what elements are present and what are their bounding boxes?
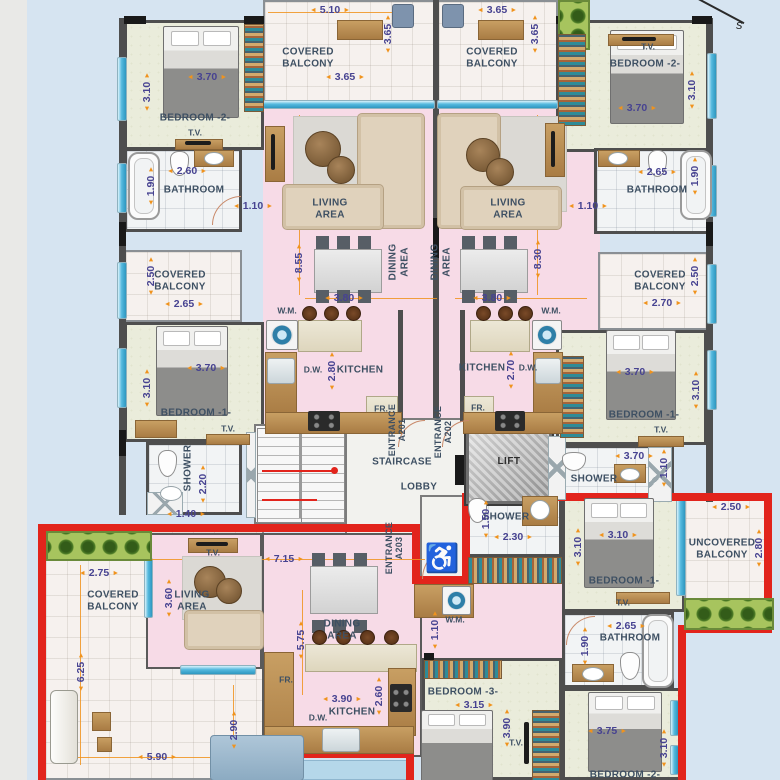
dim-bedroom2-w-a201: 3.70 [187,71,227,83]
dim-living-h-a201: 8.55 [293,243,305,283]
label-dining-a203: DINING AREA [317,619,367,642]
dim-bedroom2-h-a201: 3.10 [141,72,153,112]
window-balcony-a202 [707,264,717,324]
dim-shower-w-a201: 1.40 [166,508,206,520]
label-bathroom-a202: BATHROOM [627,184,688,196]
dim-wm-a203: 1.10 [429,610,441,650]
staircase-handrail-dot [331,467,338,474]
dim-bedroom1-h-a201: 3.10 [141,368,153,408]
dim-bedroom1-w-a201: 3.70 [186,362,226,374]
stove-a201 [308,411,340,431]
staircase-rail [299,430,302,518]
dim-balcony-mid-w-a201: 2.65 [164,298,204,310]
dim-365-side-a201: 3.65 [382,14,394,54]
stool-a202-1 [476,306,491,321]
tv-unit-bedroom1-a202 [638,436,684,447]
label-tv-bedroom1-a202: T.V. [654,426,668,435]
dim-bedroom2-h-a203: 3.10 [658,728,670,768]
label-tv-living-a203: T.V. [206,549,220,558]
side-table2-a203 [97,737,112,752]
tv-bedroom3-a203 [524,722,529,764]
label-dining-a202: DINING AREA [430,237,453,287]
dim-shower-h-a202: 1.10 [658,448,670,488]
compass-label: s [736,17,743,32]
dim-bedroom2-w-a203: 3.75 [587,725,627,737]
basin-shower-a202 [620,468,640,481]
dim-shower-h-a203: 1.50 [480,499,492,539]
dim-365-top-a202: 3.65 [477,4,517,16]
tv-bedroom2-a201 [185,141,211,145]
balcony-table-a202 [478,20,524,40]
dim-uncovered-w: 2.50 [711,501,751,513]
dishwasher-a202 [535,358,561,384]
label-bedroom3-a203: BEDROOM -3- [428,686,499,698]
basin-a202 [608,152,628,165]
rail-balcony-a202 [437,100,558,109]
window-bedroom2-a202 [707,53,717,119]
dining-chairs-a203-top [312,553,374,566]
tv-bedroom2-a202 [622,37,656,41]
dim-uncovered-h: 2.80 [753,528,765,568]
balcony-chair-a202 [442,4,464,28]
dim-bedroom3-w-a203: 3.15 [454,699,494,711]
dim-bedroom3-h-a203: 3.90 [501,708,513,748]
stool-a202-3 [518,306,533,321]
entrance-a202-unit: A202 [443,406,453,458]
stove-a203 [390,684,412,712]
dim-bathroom-h-a202: 1.90 [689,156,701,196]
dresser-bedroom1-a201 [135,420,177,438]
dim-shower-w-a203: 2.30 [493,531,533,543]
dining-table-a201 [314,249,382,293]
dim-bedroom1-h-a202: 3.10 [690,370,702,410]
stool-a203-4 [384,630,399,645]
wall-accent-2 [244,16,264,24]
wall-accent-1 [124,16,146,24]
dim-bathroom-w-a203: 2.65 [606,620,646,632]
dim-hall-a201: 1.10 [233,200,273,212]
entrance-a203-unit: A203 [394,522,404,574]
red-outline-vestibule-left [412,524,420,584]
lift-label: LIFT [497,456,520,467]
staircase-flight-right [301,428,345,523]
bed-bedroom3-a203 [421,710,493,780]
planter-uncovered-balcony [684,598,774,630]
label-balcony-mid-a202: COVERED BALCONY [620,270,700,293]
dim-bathroom-h-a203: 1.90 [579,626,591,666]
tv-living-a203 [196,542,228,546]
bar-counter-a201 [298,320,362,352]
dim-bedroom1-w-a202: 3.70 [615,366,655,378]
label-tv-bedroom1-a203: T.V. [616,599,630,608]
dim-365-w-a201: 3.65 [325,71,365,83]
staircase-arrow-line [262,499,317,501]
label-entrance-a203: ENTRANCE A203 [384,522,404,574]
label-tv-bedroom1-a201: T.V. [221,425,235,434]
window-bedroom2-a201 [117,57,127,121]
stool-a201-3 [346,306,361,321]
dim-living-h-a202: 8.30 [532,239,544,279]
dim-kitchen-w-a203: 3.90 [322,693,362,705]
label-bedroom2-a201: BEDROOM -2- [160,112,231,124]
bar-counter-a202 [470,320,530,352]
dining-table-a202 [460,249,528,293]
dim-shower-h-a201: 2.20 [197,464,209,504]
dim-balcony-mid-w-a202: 2.70 [642,297,682,309]
label-dw-a202: D.W. [519,364,537,373]
side-table-a203 [92,712,111,731]
label-staircase: STAIRCASE [372,456,432,468]
dishwasher-a201 [267,358,295,384]
rail-balcony-a201 [263,100,435,109]
label-entrance-a202: ENTRANCE A202 [433,406,453,458]
dim-kitchen-h-a201: 2.80 [326,351,338,391]
entrance-a201-unit: A201 [397,404,407,456]
wall-accent-4 [692,16,712,24]
dim-kitchen-h-a203: 2.60 [373,676,385,716]
dim-hall-a202: 1.10 [568,200,608,212]
label-wm-a202: W.M. [541,307,560,316]
balcony-table-a201 [337,20,383,40]
window-bedroom1-a202 [707,350,717,410]
dim-bedroom1-w-a203: 3.10 [598,529,638,541]
label-dining-a201: DINING AREA [388,237,411,287]
label-bathroom-a201: BATHROOM [164,184,225,196]
tv-living-a201 [271,134,275,170]
label-tv-bedroom2-a201: T.V. [188,129,202,138]
stool-a202-2 [498,306,513,321]
planter-a203-top [46,531,152,561]
coffee-table2-a203 [216,578,242,604]
label-kitchen-a203: KITCHEN [329,706,376,718]
entrance-a202-word: ENTRANCE [433,406,443,458]
dim-balcony-w2-a203: 5.90 [137,751,177,763]
daybed-a203 [210,735,304,780]
dim-living-h-a203: 3.60 [163,578,175,618]
wall-accent-6 [119,430,126,456]
dining-table-a203 [310,566,378,614]
window-bedroom1-a201 [117,348,127,408]
lift-shaft-hatch [548,436,566,500]
dim-balcony-mid-h-a202: 2.50 [689,256,701,296]
label-bedroom1-a202: BEDROOM -1- [609,409,680,421]
basin-a203 [582,667,604,681]
label-fr-a203: FR. [279,676,293,685]
stool-a201-2 [324,306,339,321]
label-kitchen-a202: KITCHEN [459,362,506,374]
dining-chairs-a202-top [462,236,524,249]
label-living-a202: LIVING AREA [483,198,533,221]
dim-bathroom-w-a201: 2.60 [167,165,207,177]
staircase-handrail-line [262,470,332,472]
label-bedroom1-a203: BEDROOM -1- [589,575,660,587]
label-fr-a202: FR. [471,404,485,413]
entrance-a201-word: ENTRANCE [387,404,397,456]
dim-balcony-mid-h-a201: 2.50 [145,256,157,296]
label-bedroom2-a202: BEDROOM -2- [610,58,681,70]
wall-accent-8 [706,222,713,246]
label-bathroom-a203: BATHROOM [600,632,661,644]
staircase-flight-left [257,428,302,523]
dim-shower-w-a202: 3.70 [614,450,654,462]
dim-bathroom-h-a201: 1.90 [145,166,157,206]
lounge-chair-a203 [50,690,78,764]
coffee-table2-a202 [486,158,514,186]
stool-a201-1 [302,306,317,321]
balcony-chair-a201 [392,4,414,28]
dim-balcony-w-a203: 2.75 [79,567,119,579]
dining-chairs-a201-top [316,236,378,249]
label-balcony-top-a201: COVERED BALCONY [263,47,353,70]
red-outline-kitchen-right [406,750,414,780]
floor-plan: s LIFT [0,0,780,780]
dim-dining-h-a203: 5.75 [295,620,307,660]
tv-unit-living-a202 [545,123,565,177]
sofa-a203 [184,610,264,650]
wardrobe-bedroom1-a202 [560,356,584,438]
basin-shower-a203 [530,500,550,520]
page-margin-strip [0,0,27,780]
label-lobby: LOBBY [401,481,438,493]
dim-bedroom2-h-a202: 3.10 [686,70,698,110]
wardrobe-hall-a203 [468,557,562,584]
label-balcony-a203: COVERED BALCONY [73,590,153,613]
label-bedroom1-a201: BEDROOM -1- [161,407,232,419]
stove-a202 [495,411,525,431]
wardrobe-bedroom3-right [532,710,560,780]
dim-balcony-h-a203: 6.25 [75,652,87,692]
dim-bedroom2-w-a202: 3.70 [617,102,657,114]
label-wm-a201: W.M. [277,307,296,316]
coffee-table2-a201 [327,156,355,184]
label-wm-a203: W.M. [445,616,464,625]
window-balcony-a201 [117,262,127,319]
dim-bathroom-w-a202: 2.65 [637,166,677,178]
label-shower-a201: SHOWER [182,445,194,492]
label-entrance-a201: ENTRANCE A201 [387,404,407,456]
red-outline-left [38,524,46,780]
dim-365-side-a202: 3.65 [529,14,541,54]
label-bedroom2-a203: BEDROOM -2- [590,769,661,780]
dim-balcony-h2-a203: 2.90 [228,710,240,750]
label-dw-a201: D.W. [304,366,322,375]
label-shower-a202: SHOWER [571,473,618,485]
washing-machine-a201 [266,320,298,350]
dim-dining-w-a201: 3.80 [324,292,364,304]
dim-kitchen-h-a202: 2.70 [505,350,517,390]
tv-unit-bedroom1-a201 [206,434,250,445]
dim-510: 5.10 [310,4,350,16]
dim-bedroom1-h-a203: 3.10 [572,527,584,567]
window-living-a203 [180,665,256,675]
tv-living-a202 [551,131,555,167]
tv-unit-living-a201 [265,126,285,182]
bathtub-a203 [642,614,674,688]
label-balcony-top-a202: COVERED BALCONY [447,47,537,70]
basin-a201 [204,152,224,165]
washing-machine-a202 [532,320,562,350]
window-bathroom-a201 [117,163,127,213]
dim-dining-w-a202: 3.80 [472,292,512,304]
wall-accent-7 [119,222,126,246]
dim-dining-w-a203: 7.15 [264,553,304,565]
label-fr-a201: FR. [374,405,388,414]
basin-shower-a201 [160,486,182,501]
wheelchair-icon: ♿ [425,542,460,575]
kitchen-sink-a203 [322,728,360,752]
wardrobe-bedroom2-a201 [244,24,264,112]
entrance-a203-word: ENTRANCE [384,522,394,574]
wardrobe-bedroom2-a202 [558,34,586,126]
label-kitchen-a201: KITCHEN [337,364,384,376]
label-living-a201: LIVING AREA [305,198,355,221]
label-tv-bedroom2-a202: T.V. [641,43,655,52]
label-dw-a203: D.W. [309,714,327,723]
washing-machine-a203 [442,586,471,615]
red-outline-right-lower [678,625,686,780]
wardrobe-bedroom3-top [424,660,502,679]
